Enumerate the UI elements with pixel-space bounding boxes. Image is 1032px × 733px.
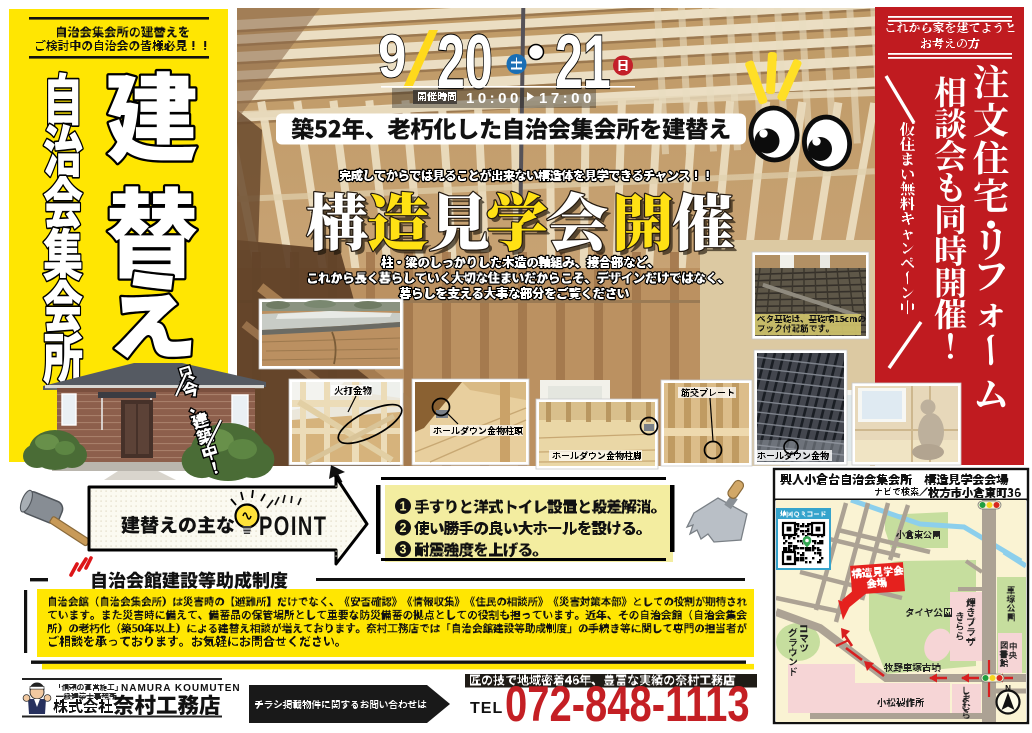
svg-text:17:00: 17:00	[539, 90, 595, 107]
svg-text:1: 1	[400, 499, 407, 513]
svg-text:2: 2	[400, 521, 407, 535]
svg-text:NAMURA KOUMUTEN: NAMURA KOUMUTEN	[121, 683, 241, 694]
svg-text:POINT: POINT	[259, 511, 327, 542]
svg-text:072-848-1113: 072-848-1113	[505, 676, 750, 728]
svg-text:N: N	[1005, 684, 1011, 693]
svg-text:10:00: 10:00	[466, 90, 522, 107]
svg-text:9: 9	[378, 23, 406, 90]
svg-text:TEL: TEL	[470, 700, 503, 717]
svg-text:3: 3	[400, 542, 407, 556]
